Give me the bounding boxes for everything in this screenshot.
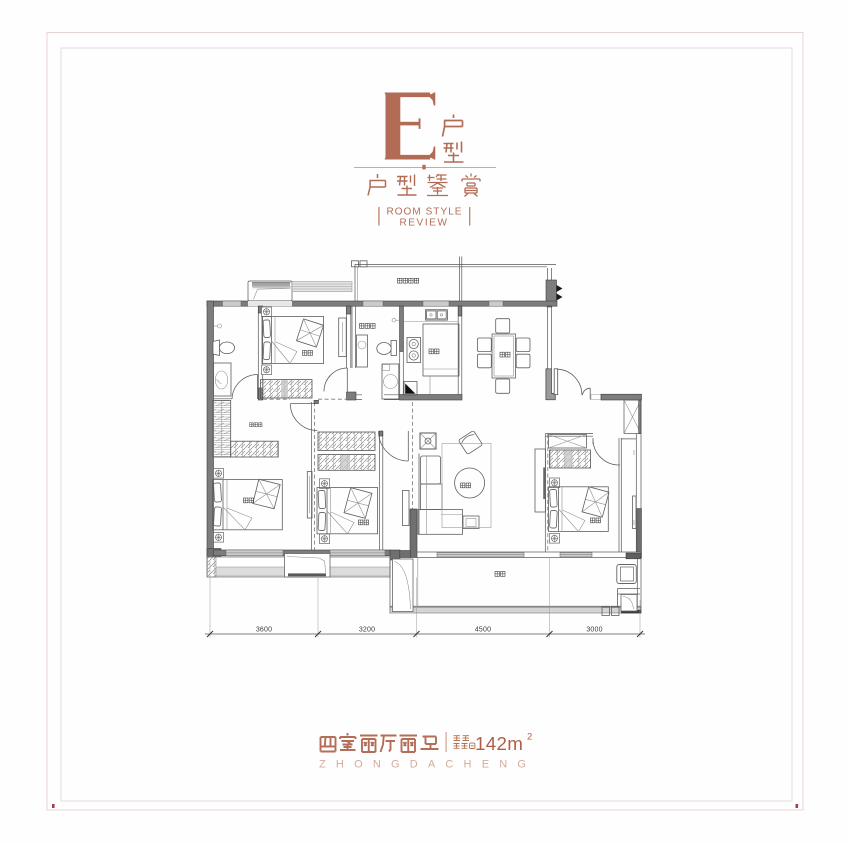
svg-text:4500: 4500 bbox=[475, 627, 491, 634]
svg-text:3200: 3200 bbox=[359, 627, 375, 634]
svg-text:REVIEW: REVIEW bbox=[399, 218, 448, 229]
svg-text:ZHONGDACHENG: ZHONGDACHENG bbox=[319, 759, 536, 771]
svg-text:ROOM STYLE: ROOM STYLE bbox=[386, 207, 462, 218]
svg-text:3000: 3000 bbox=[586, 627, 602, 634]
svg-text:2: 2 bbox=[527, 732, 532, 743]
svg-text:3600: 3600 bbox=[256, 627, 272, 634]
svg-text:142m: 142m bbox=[475, 733, 523, 754]
